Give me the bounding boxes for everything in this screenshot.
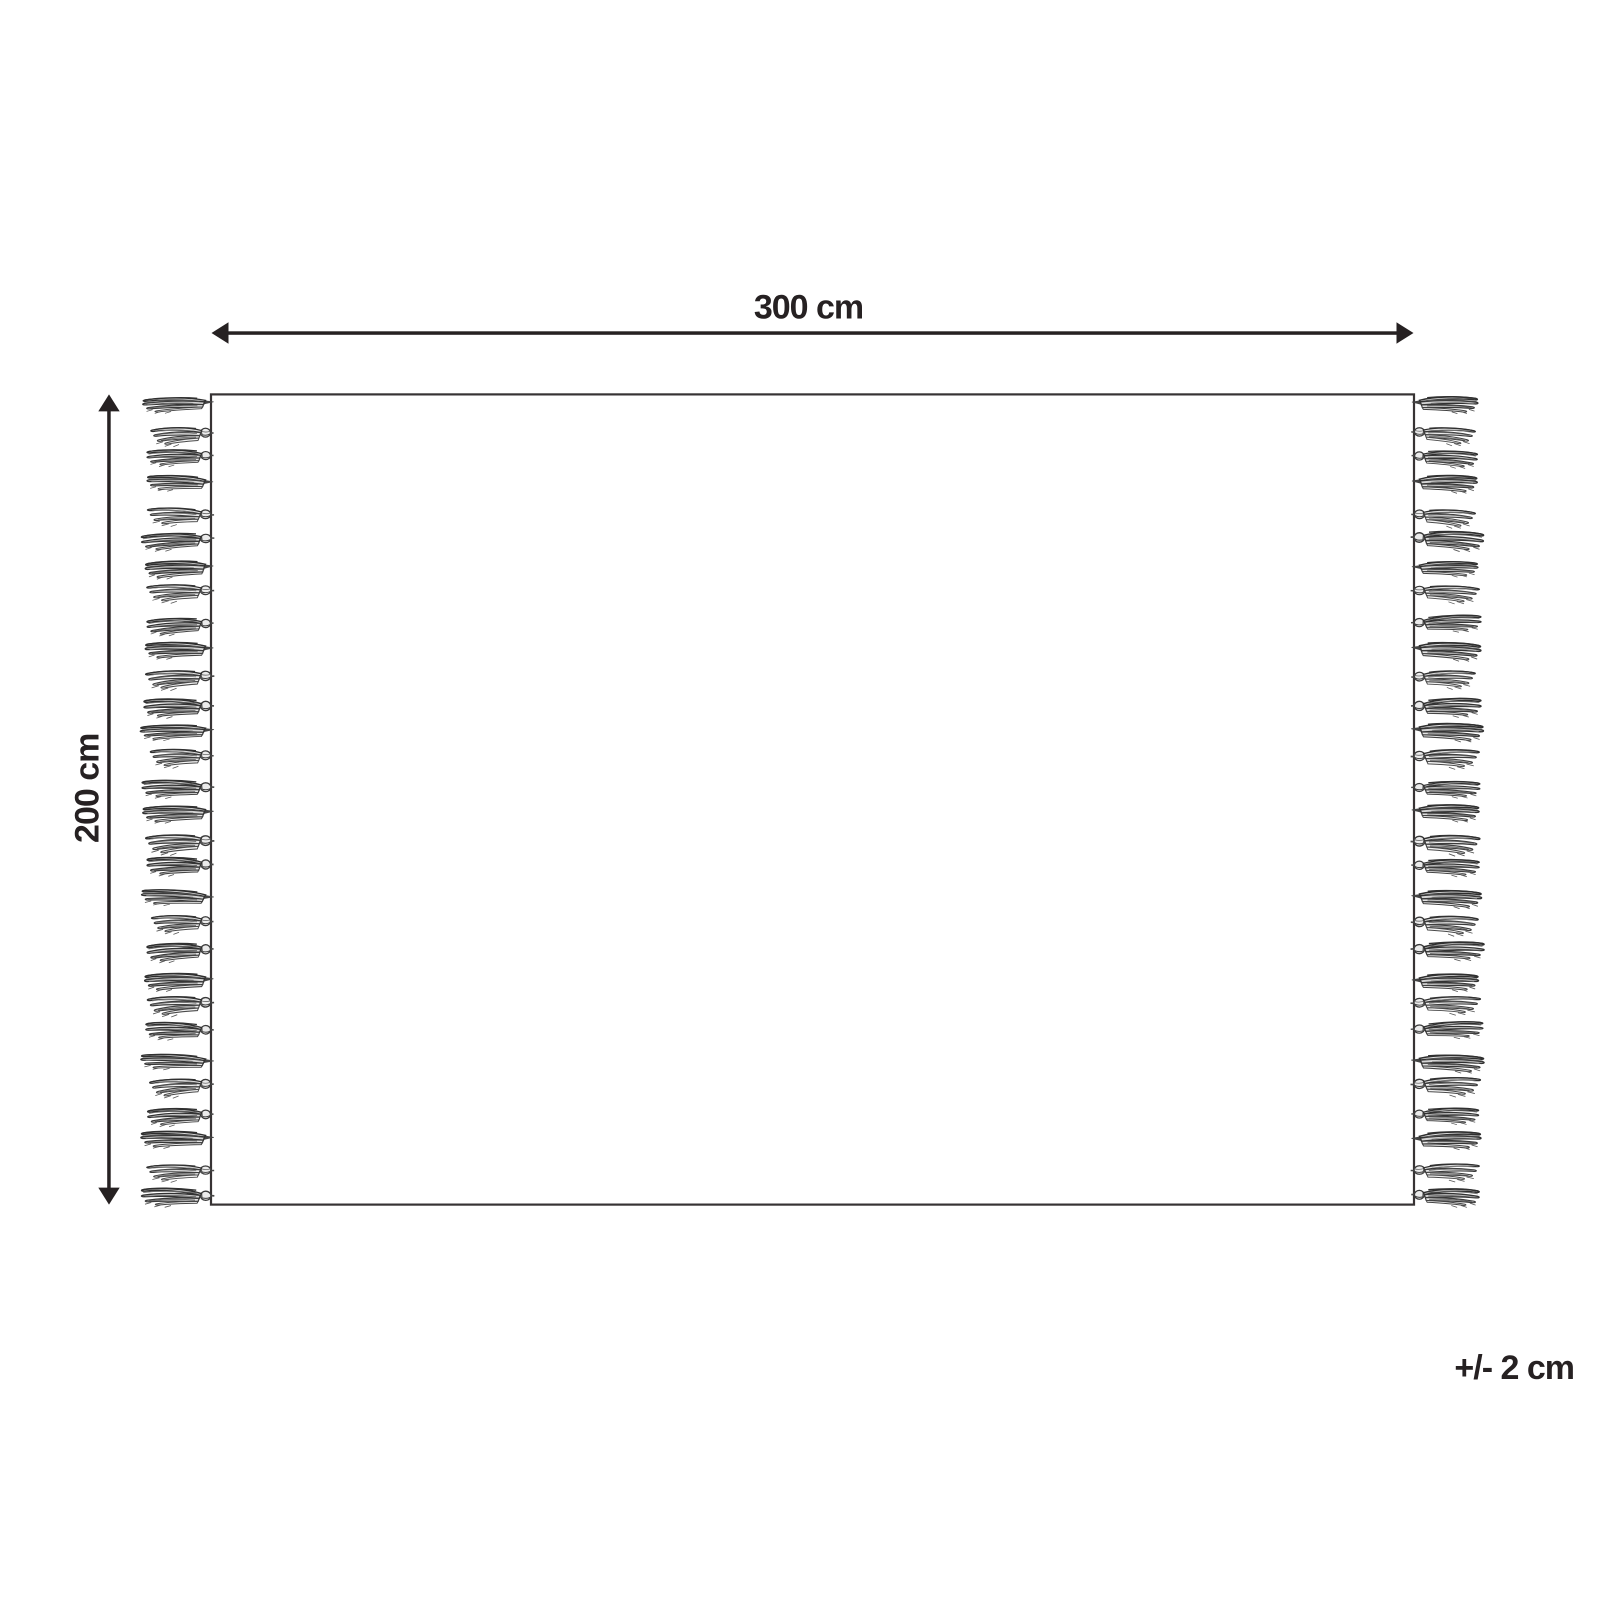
svg-text:200 cm: 200 cm xyxy=(69,734,107,843)
svg-text:+/- 2 cm: +/- 2 cm xyxy=(1454,1349,1574,1387)
svg-text:300 cm: 300 cm xyxy=(754,288,863,326)
